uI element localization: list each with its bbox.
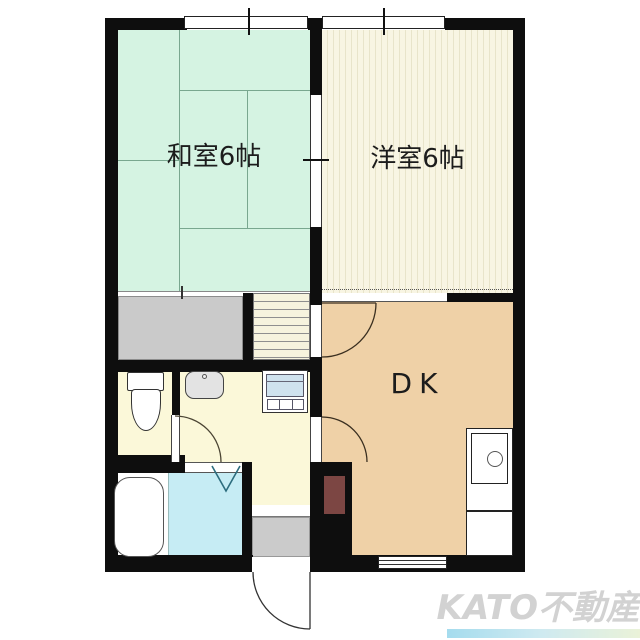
japanese-room-label: 和室6帖 <box>118 144 310 171</box>
bathtub <box>114 477 164 557</box>
closet-front-mark <box>181 286 183 299</box>
entrance-door-opening <box>252 557 310 572</box>
entrance-step <box>252 505 310 517</box>
washing-machine-lid <box>266 374 304 397</box>
wall <box>447 293 513 302</box>
wall <box>310 357 322 417</box>
dining-kitchen-label: DK <box>322 369 513 398</box>
wall <box>310 227 322 305</box>
room-divider-dotted-line <box>322 289 513 290</box>
washing-machine-panel <box>267 399 304 410</box>
closet <box>118 296 243 360</box>
entrance-floor <box>252 517 310 557</box>
washing-machine-panel-divider <box>279 399 280 410</box>
kitchen-window <box>378 556 447 569</box>
watermark-logo: KATO不動産 <box>428 591 640 625</box>
wall <box>105 555 253 572</box>
kitchen-counter-divider <box>466 510 513 512</box>
washing-machine-panel-divider <box>292 399 293 410</box>
hallway-floor <box>252 462 310 505</box>
wall <box>310 18 322 95</box>
washbasin-tap <box>202 374 207 379</box>
kitchen-faucet-icon <box>487 451 503 467</box>
tatami-line <box>179 90 310 91</box>
sliding-door-opening <box>310 95 322 227</box>
tatami-line <box>179 228 310 229</box>
window-center-mark <box>383 8 385 35</box>
bath-door-opening <box>185 462 242 473</box>
washing-machine-line <box>266 381 304 382</box>
staircase <box>253 293 310 360</box>
toilet-door-opening <box>171 415 180 462</box>
room-boundary-line <box>118 291 310 292</box>
door-opening <box>310 417 322 462</box>
wall <box>243 293 253 360</box>
refrigerator-space <box>324 476 345 514</box>
partition-opening <box>322 293 447 302</box>
wall <box>242 462 252 572</box>
wall <box>513 18 525 572</box>
window-center-mark <box>248 8 250 35</box>
western-room-label: 洋室6帖 <box>322 146 513 173</box>
floor-plan: 和室6帖 洋室6帖 DK KATO不動産 <box>0 0 640 640</box>
door-opening <box>310 305 322 357</box>
window <box>184 16 308 29</box>
watermark-underline <box>447 629 640 638</box>
bathroom-floor <box>168 473 242 555</box>
wall <box>172 370 180 417</box>
